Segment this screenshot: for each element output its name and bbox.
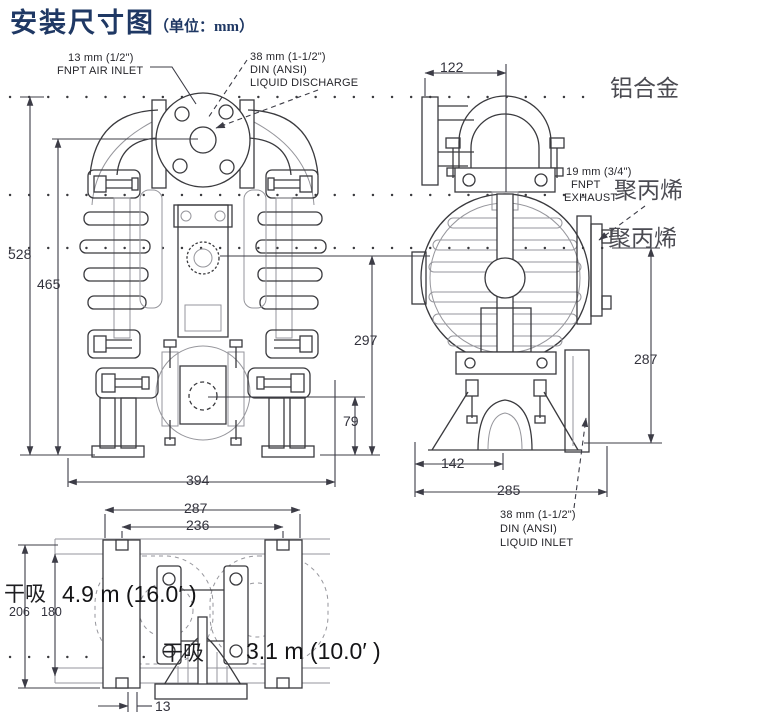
dim-bottom-depth-outer: 206 (9, 605, 30, 619)
inlet-label: LIQUID INLET (500, 537, 573, 550)
front-view (52, 60, 430, 457)
dry-suction-secondary-value: 3.1 m (10.0′ ) (246, 638, 381, 664)
dim-side-depth: 285 (497, 482, 520, 498)
discharge-std-label: DIN (ANSI) (250, 64, 307, 77)
dim-front-exhaust-height: 297 (354, 332, 377, 348)
dim-bottom-thickness: 13 (155, 698, 171, 714)
discharge-label: LIQUID DISCHARGE (250, 77, 358, 90)
discharge-size-label: 38 mm (1-1/2") (250, 51, 326, 64)
dim-front-inlet-height: 79 (343, 413, 359, 429)
exhaust-size-label: 19 mm (3/4") (566, 166, 632, 179)
dry-suction-secondary-label: 干吸 (162, 642, 204, 666)
dim-side-clamp-width: 122 (440, 59, 463, 75)
material-polypropylene-exhaust: 聚丙烯 (614, 178, 683, 204)
dim-side-foot-width: 142 (441, 455, 464, 471)
side-view (412, 96, 645, 508)
material-polypropylene-side: 聚丙烯 (608, 226, 677, 252)
dim-side-height: 287 (634, 351, 657, 367)
dim-bottom-depth-inner: 180 (41, 605, 62, 619)
exhaust-fnpt-label: FNPT (571, 179, 601, 192)
inlet-size-label: 38 mm (1-1/2") (500, 509, 576, 522)
air-inlet-label: FNPT AIR INLET (57, 65, 143, 78)
dry-suction-primary-label: 干吸 (4, 583, 46, 607)
side-view-dimensions (415, 64, 662, 497)
material-aluminum: 铝合金 (610, 76, 679, 102)
exhaust-label: EXHAUST (564, 192, 617, 205)
inlet-std-label: DIN (ANSI) (500, 523, 557, 536)
dim-front-air-inlet-height: 465 (37, 276, 60, 292)
air-inlet-size-label: 13 mm (1/2") (68, 52, 134, 65)
dim-front-width: 394 (186, 472, 209, 488)
dim-bottom-span-inner: 236 (186, 517, 209, 533)
dim-bottom-span-outer: 287 (184, 500, 207, 516)
installation-dimension-drawing: 安装尺寸图 （单位：mm） 13 mm (1/2") FNPT AIR INLE… (0, 0, 763, 726)
unit-note: （单位：mm） (154, 19, 254, 36)
dim-front-total-height: 528 (8, 246, 31, 262)
page-title: 安装尺寸图 (10, 8, 155, 39)
bottom-view (55, 539, 330, 699)
dry-suction-primary-value: 4.9 m (16.0′ ) (62, 581, 197, 607)
